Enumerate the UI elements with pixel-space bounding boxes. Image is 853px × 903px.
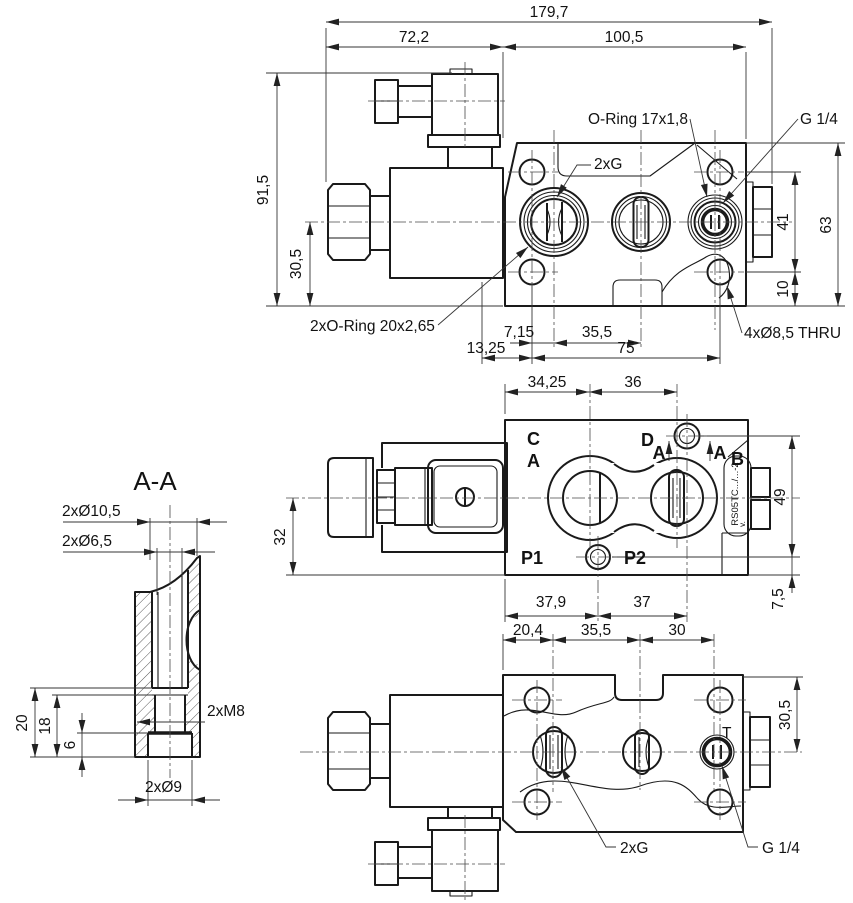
label-m8: 2xM8 <box>207 703 245 720</box>
port-label-p1: P1 <box>521 548 543 568</box>
leader-g14 <box>723 119 798 203</box>
dim-top-offset: 30,5 <box>777 700 794 730</box>
label-t: T <box>722 725 732 742</box>
top-view: 179,7 72,2 100,5 91,5 30,5 63 41 10 7,15… <box>255 4 845 364</box>
solenoid-plan <box>328 443 507 552</box>
technical-drawing: 179,7 72,2 100,5 91,5 30,5 63 41 10 7,15… <box>0 0 853 903</box>
solenoid-side <box>328 69 503 278</box>
dim-body-width: 100,5 <box>605 29 644 46</box>
dim-port-pitch2: 30 <box>668 622 686 639</box>
label-mount-holes: 4xØ8,5 THRU <box>744 325 841 342</box>
leader-oring2 <box>438 247 528 325</box>
solenoid-bottom <box>328 695 503 896</box>
section-view: A-A 2xØ10,5 2xØ6,5 2xM8 2xØ9 20 18 6 <box>14 466 245 806</box>
dim-axis-height: 30,5 <box>288 249 305 279</box>
section-mark-right: A <box>714 443 727 463</box>
dim-overall-height: 91,5 <box>255 175 272 205</box>
dim-port1-offset: 7,15 <box>504 324 534 341</box>
dim-body-height: 63 <box>818 216 835 233</box>
dim-hole-span: 49 <box>772 488 789 505</box>
leader-thru <box>727 286 742 333</box>
dim-hole-edge-v: 10 <box>775 280 792 298</box>
leader-2xg-bottom <box>561 767 616 847</box>
valve-body-bottom <box>503 675 770 832</box>
dim-port-pitch1: 35,5 <box>581 622 611 639</box>
stamp-note: v. <box>738 521 747 527</box>
dim-port1-x: 34,25 <box>528 374 567 391</box>
section-title: A-A <box>133 466 177 496</box>
label-bore: 2xØ6,5 <box>62 533 112 550</box>
valve-body-side <box>505 143 772 306</box>
dim-axis-offset: 32 <box>272 528 289 545</box>
label-g14: G 1/4 <box>800 111 838 128</box>
dim-p-hole-x: 37,9 <box>536 594 566 611</box>
bottom-view: 20,4 35,5 30 30,5 T 2xG G 1/4 <box>300 622 803 900</box>
section-mark-left: A <box>653 443 666 463</box>
leader-oring <box>690 119 707 197</box>
label-oring: O-Ring 17x1,8 <box>588 111 688 128</box>
dim-hole-edge: 7,5 <box>770 588 787 610</box>
dim-depth-total: 20 <box>14 714 31 732</box>
dim-edge-offset: 13,25 <box>467 340 506 357</box>
plan-view: 34,25 36 32 49 7,5 37,9 37 C A D B P1 P2… <box>272 374 800 622</box>
stamp-text: RS05TC.../...-2 <box>730 462 741 525</box>
dim-depth-thread: 18 <box>37 717 54 734</box>
label-oring2: 2xO-Ring 20x2,65 <box>310 318 435 335</box>
leader-2xg <box>557 165 591 197</box>
port-label-c: C <box>527 429 540 449</box>
dim-hole-span-h: 75 <box>617 340 634 357</box>
dim-port-pitch: 35,5 <box>582 324 612 341</box>
label-cbore: 2xØ10,5 <box>62 503 121 520</box>
dim-hole-x: 20,4 <box>513 622 544 639</box>
dimension-arrows-section <box>35 522 211 800</box>
label-g14-bottom: G 1/4 <box>762 840 800 857</box>
label-cbore2: 2xØ9 <box>145 779 182 796</box>
dim-depth-cbore: 6 <box>62 741 79 750</box>
dim-d-hole-x: 37 <box>633 594 650 611</box>
dim-port2-x: 36 <box>624 374 641 391</box>
dim-solenoid-length: 72,2 <box>399 29 429 46</box>
drawing-canvas: 179,7 72,2 100,5 91,5 30,5 63 41 10 7,15… <box>0 0 853 903</box>
port-label-p2: P2 <box>624 548 646 568</box>
label-2xg: 2xG <box>594 156 622 173</box>
dim-overall-width: 179,7 <box>530 4 569 21</box>
label-2xg-bottom: 2xG <box>620 840 648 857</box>
port-label-a: A <box>527 451 540 471</box>
